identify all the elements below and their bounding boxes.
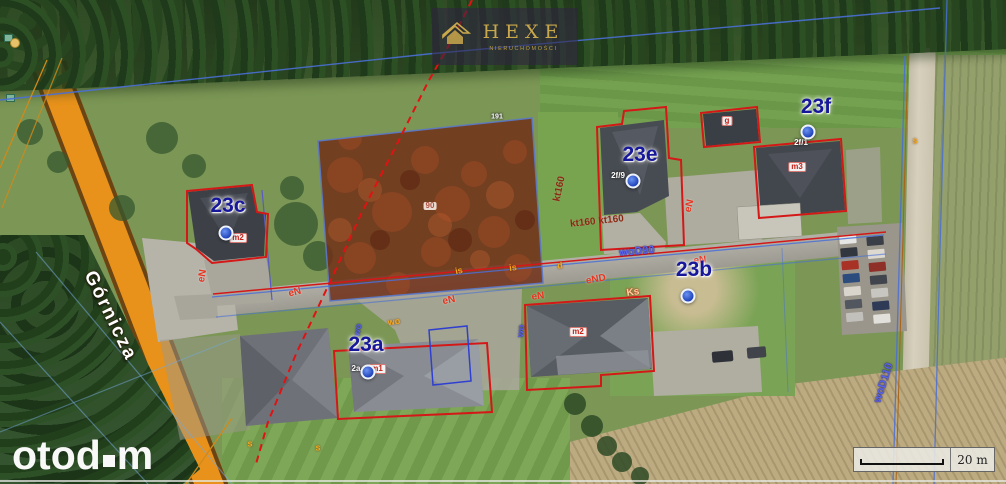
parcel-marker-dot-23c — [219, 226, 234, 241]
parcel-marker-dot-23b — [681, 289, 696, 304]
parcel-marker-label-23a: 23a — [348, 333, 383, 357]
scale-bar-value: 20 m — [950, 448, 994, 471]
agency-name: HEXE — [478, 21, 569, 43]
agency-subtitle: NIERUCHOMOŚCI — [478, 46, 569, 52]
parcel-marker-label-23e: 23e — [622, 143, 657, 167]
parcel-marker-dot-23a — [361, 365, 376, 380]
house-icon — [441, 21, 471, 52]
agency-logo: HEXE NIERUCHOMOŚCI — [432, 8, 578, 65]
watermark-text-left: otod — [12, 432, 101, 479]
parcel-marker-label-23c: 23c — [210, 194, 245, 218]
aerial-parcel-map: woD90woD110wowowoisisdssseNeNeNeNDeNeNeN… — [0, 0, 1006, 484]
image-bottom-border — [0, 480, 1006, 482]
parcel-marker-label-23b: 23b — [676, 258, 712, 282]
scale-bar: 20 m — [853, 447, 995, 472]
otodom-square-glyph — [103, 455, 115, 467]
parcel-marker-dot-23f — [801, 125, 816, 140]
watermark-text-right: m — [117, 432, 153, 479]
otodom-watermark: otod m — [12, 432, 153, 479]
marker-layer: 23c23a23b23e23f — [0, 0, 1006, 484]
parcel-marker-label-23f: 23f — [801, 95, 831, 119]
scale-bar-line — [854, 448, 950, 471]
parcel-marker-dot-23e — [626, 174, 641, 189]
